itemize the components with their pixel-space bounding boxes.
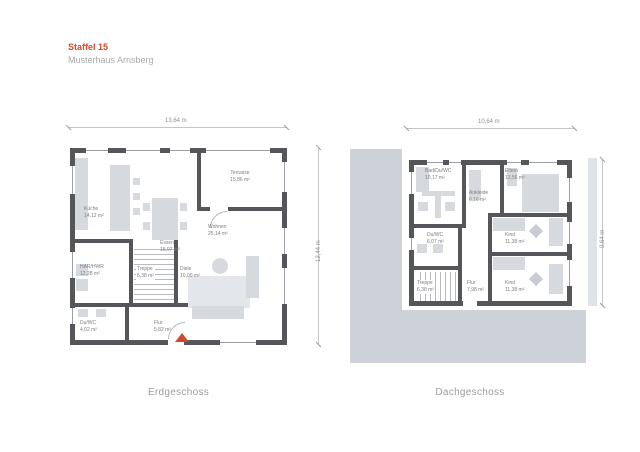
window-marker <box>567 260 572 286</box>
dimension-label-dg-height: 9,64 m <box>600 230 606 248</box>
wall-kind-divider <box>488 252 572 256</box>
room-name: Bad/Du/WC <box>425 168 451 175</box>
room-label-kueche: Küche 14,12 m² <box>84 206 104 220</box>
dimension-label-dg-width: 10,64 m <box>478 119 500 125</box>
window-marker <box>529 160 557 165</box>
room-label-eltern: Eltern 13,56 m² <box>505 168 525 182</box>
double-bed <box>522 174 559 212</box>
window-marker <box>220 340 256 345</box>
room-area: 5,82 m² <box>154 327 171 334</box>
room-area: 15,97 m² <box>160 247 180 254</box>
room-name: Kind <box>505 280 524 287</box>
sofa <box>192 306 244 319</box>
stool <box>133 178 140 185</box>
desk <box>529 272 543 286</box>
sink <box>417 244 427 253</box>
room-label-kind1: Kind 11,38 m² <box>505 232 524 246</box>
stool <box>133 193 140 200</box>
wall-duwc-treppe <box>414 266 460 270</box>
room-name: Diele <box>180 266 200 273</box>
desk <box>529 224 543 238</box>
window-marker <box>449 160 461 165</box>
window-marker <box>206 148 270 153</box>
room-area: 6,38 m² <box>417 287 434 294</box>
room-name: Wohnen <box>208 224 228 231</box>
toilet <box>96 309 106 317</box>
caption-dachgeschoss: Dachgeschoss <box>380 387 560 398</box>
room-area: 13,56 m² <box>505 175 525 182</box>
sofa <box>246 256 259 298</box>
window-marker <box>282 162 287 192</box>
kitchen-island <box>110 165 130 231</box>
room-label-treppe: Treppe 6,38 m² <box>136 266 155 280</box>
chair <box>143 222 150 230</box>
window-marker <box>427 160 443 165</box>
wardrobe <box>549 218 563 246</box>
window-marker <box>282 268 287 304</box>
room-label-bad: Bad/Du/WC 10,17 m² <box>425 168 451 182</box>
room-area: 15,86 m² <box>220 177 260 184</box>
room-area: 7,98 m² <box>467 287 484 294</box>
chair <box>180 203 187 211</box>
coffee-table <box>212 258 228 274</box>
stool <box>133 208 140 215</box>
room-label-duwc-dg: Du/WC 6,07 m² <box>427 232 444 246</box>
window-marker <box>282 228 287 254</box>
dining-table <box>152 198 178 240</box>
floorplan-erdgeschoss: Küche 14,12 m² Essen 15,97 m² Wohnen 25,… <box>70 148 287 345</box>
room-name: Küche <box>84 206 104 213</box>
room-area: 4,02 m² <box>80 327 97 334</box>
room-area: 12,28 m² <box>80 271 104 278</box>
wall-bad-bottom <box>414 224 464 228</box>
room-name: Treppe <box>137 266 154 273</box>
room-name: Ankleide <box>469 190 488 197</box>
room-area: 14,12 m² <box>84 213 104 220</box>
room-name: Flur <box>467 280 484 287</box>
window-marker <box>126 148 160 153</box>
room-area: 25,14 m² <box>208 231 228 238</box>
title-block: Staffel 15 Musterhaus Arnsberg <box>68 42 154 65</box>
room-area: 11,38 m² <box>505 239 524 246</box>
dimension-line-eg-top <box>68 127 287 128</box>
roof-backdrop-right <box>588 158 597 306</box>
room-label-ankleide: Ankleide 6,16 m² <box>469 190 488 204</box>
room-name: Du/WC <box>80 320 97 327</box>
wall-hwr-right <box>129 239 133 307</box>
room-label-flur-dg: Flur 7,98 m² <box>467 280 484 294</box>
entrance-marker-icon <box>175 333 189 342</box>
window-marker <box>86 148 108 153</box>
window-marker <box>170 148 190 153</box>
wall-kitchen-hwr <box>75 239 133 243</box>
room-name: Terrasse <box>220 170 260 177</box>
room-label-duwc: Du/WC 4,02 m² <box>80 320 97 334</box>
dimension-label-eg-height: 12,44 m <box>316 240 322 262</box>
wall-eltern-bottom <box>488 213 572 217</box>
page-subtitle: Musterhaus Arnsberg <box>68 55 154 65</box>
wall-terrace-left <box>197 153 201 211</box>
rug <box>188 276 250 308</box>
window-marker <box>70 252 75 278</box>
wall-corridor-right <box>488 213 492 301</box>
wall-duwc-right <box>125 303 129 340</box>
door-gap <box>463 301 477 306</box>
room-area: 10,00 m² <box>180 273 200 280</box>
window-marker <box>70 308 75 324</box>
room-name: Flur <box>154 320 171 327</box>
sink <box>445 202 455 211</box>
room-label-treppe-dg: Treppe 6,38 m² <box>416 280 435 294</box>
room-label-flur: Flur 5,82 m² <box>154 320 171 334</box>
wall <box>409 301 572 306</box>
room-area: 6,16 m² <box>469 197 488 204</box>
dimension-line-dg-top <box>406 128 575 129</box>
bed <box>493 218 525 231</box>
wardrobe <box>549 264 563 294</box>
room-name: HAR/HWR <box>80 264 104 271</box>
wall-hall-top <box>75 303 202 307</box>
room-label-diele: Diele 10,00 m² <box>180 266 200 280</box>
window-marker <box>567 222 572 244</box>
room-name: Eltern <box>505 168 525 175</box>
wall-bad-right <box>462 165 466 228</box>
room-area: 6,38 m² <box>137 273 154 280</box>
floorplan-dachgeschoss: Bad/Du/WC 10,17 m² Eltern 13,56 m² Ankle… <box>409 160 572 306</box>
room-name: Du/WC <box>427 232 444 239</box>
wall-ankleide-eltern <box>500 165 504 217</box>
window-marker <box>567 178 572 202</box>
dimension-label-eg-width: 13,64 m <box>165 118 187 124</box>
room-name: Essen <box>160 240 180 247</box>
room-area: 6,07 m² <box>427 239 444 246</box>
window-marker <box>409 172 414 194</box>
room-name: Treppe <box>417 280 434 287</box>
window-marker <box>507 160 521 165</box>
chair <box>180 222 187 230</box>
wall-duwc-right <box>458 228 462 301</box>
bed <box>493 257 525 270</box>
room-label-essen: Essen 15,97 m² <box>160 240 180 254</box>
window-marker <box>409 238 414 250</box>
room-label-kind2: Kind 11,38 m² <box>505 280 524 294</box>
sink <box>78 309 88 317</box>
appliance <box>76 279 88 291</box>
room-label-wohnen: Wohnen 25,14 m² <box>208 224 228 238</box>
caption-erdgeschoss: Erdgeschoss <box>70 387 287 398</box>
room-area: 11,38 m² <box>505 287 524 294</box>
roof-backdrop-bottom <box>350 310 586 363</box>
chair <box>143 203 150 211</box>
room-label-terrasse: Terrasse 15,86 m² <box>220 170 260 184</box>
vanity <box>435 196 441 218</box>
room-area: 10,17 m² <box>425 175 451 182</box>
toilet <box>418 202 428 211</box>
room-label-hwr: HAR/HWR 12,28 m² <box>80 264 104 278</box>
page-title: Staffel 15 <box>68 42 154 52</box>
room-name: Kind <box>505 232 524 239</box>
